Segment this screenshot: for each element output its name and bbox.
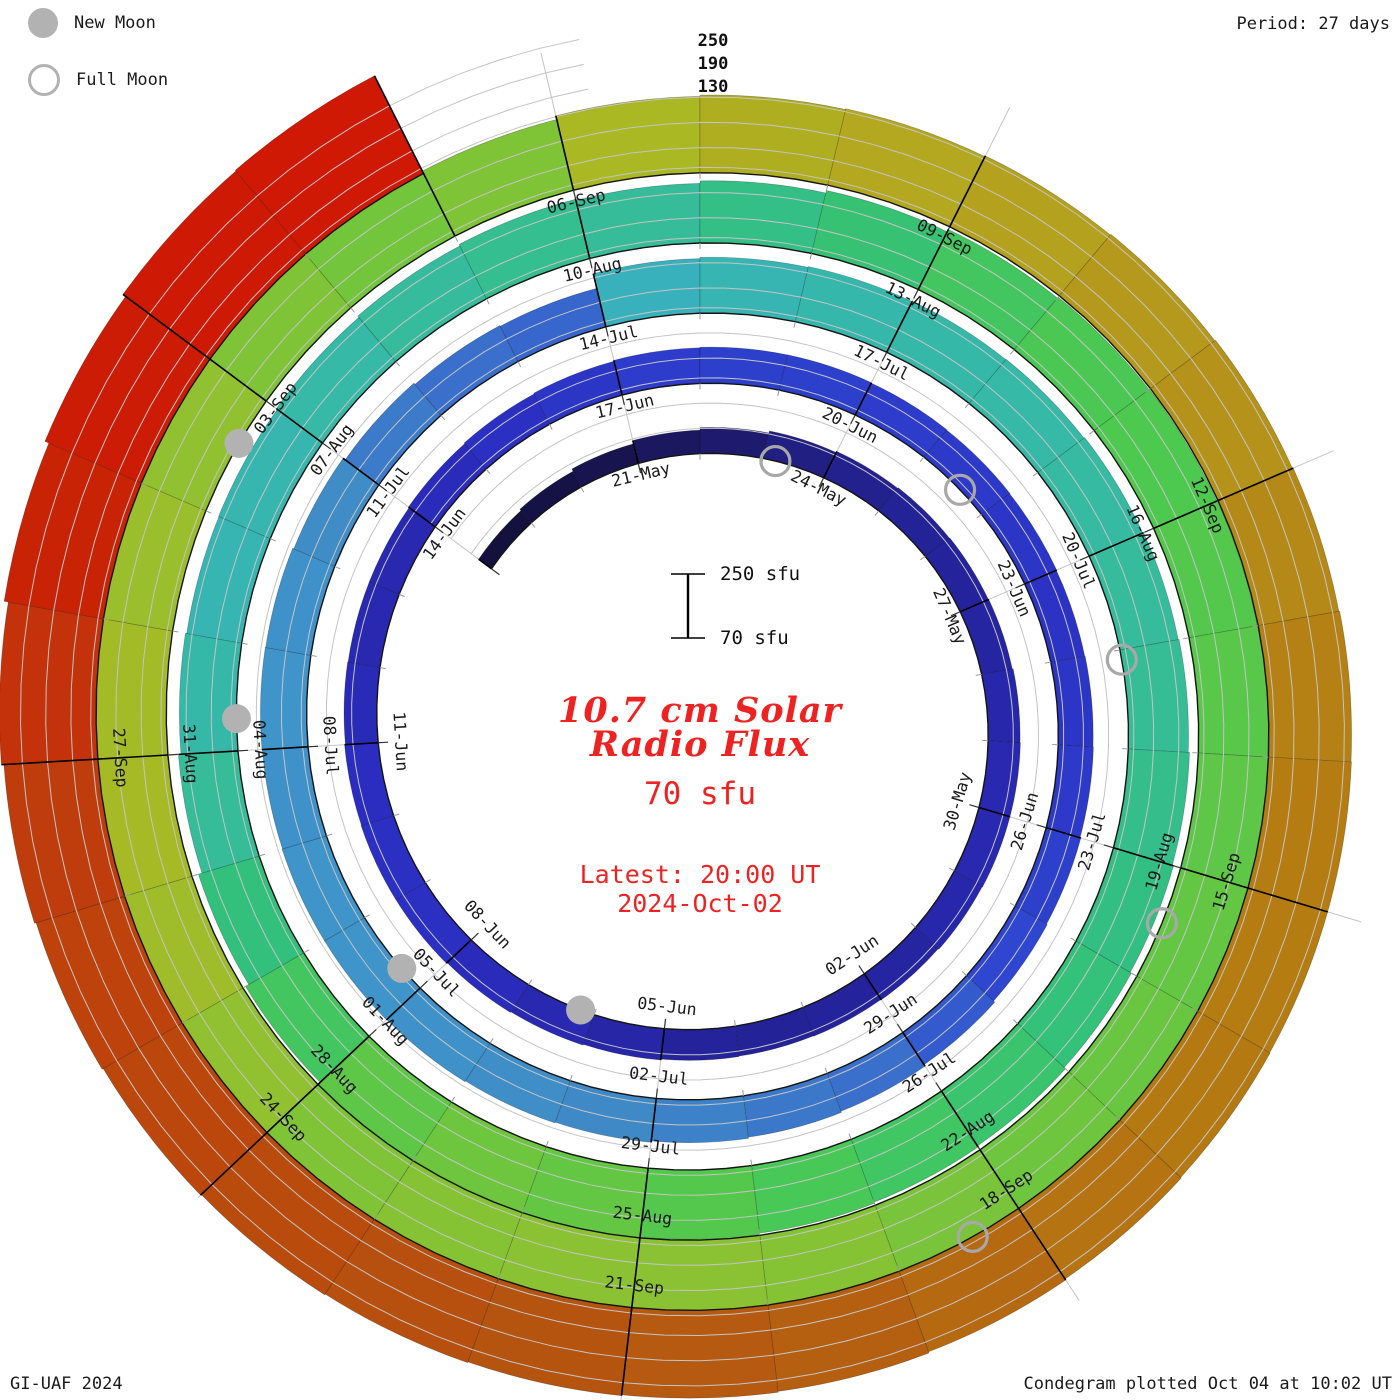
svg-text:190: 190 xyxy=(698,54,729,74)
svg-text:05-Jun: 05-Jun xyxy=(636,993,697,1019)
full-moon-icon xyxy=(28,64,60,96)
svg-text:08-Jul: 08-Jul xyxy=(319,715,341,776)
new-moon-label: New Moon xyxy=(74,13,156,33)
new-moon-icon xyxy=(28,8,58,38)
svg-text:70 sfu: 70 sfu xyxy=(720,627,789,649)
condegram-page: 21-May24-May27-May30-May02-Jun05-Jun08-J… xyxy=(0,0,1400,1400)
svg-text:27-Sep: 27-Sep xyxy=(109,727,131,788)
legend-item-new-moon: New Moon xyxy=(28,8,156,38)
period-label: Period: 27 days xyxy=(1236,14,1390,34)
svg-text:30-May: 30-May xyxy=(940,770,975,833)
svg-text:130: 130 xyxy=(698,77,729,97)
legend-item-full-moon: Full Moon xyxy=(28,64,168,96)
full-moon-label: Full Moon xyxy=(76,70,168,90)
svg-text:250 sfu: 250 sfu xyxy=(720,563,800,585)
plotted-timestamp-label: Condegram plotted Oct 04 at 10:02 UT xyxy=(1024,1374,1392,1394)
svg-text:250: 250 xyxy=(698,31,729,51)
svg-text:04-Aug: 04-Aug xyxy=(249,719,271,780)
svg-text:11-Jun: 11-Jun xyxy=(389,711,411,772)
svg-text:31-Aug: 31-Aug xyxy=(179,723,201,784)
svg-text:02-Jul: 02-Jul xyxy=(628,1063,689,1089)
credit-label: GI-UAF 2024 xyxy=(10,1374,123,1394)
condegram-spiral-chart: 21-May24-May27-May30-May02-Jun05-Jun08-J… xyxy=(0,0,1400,1400)
